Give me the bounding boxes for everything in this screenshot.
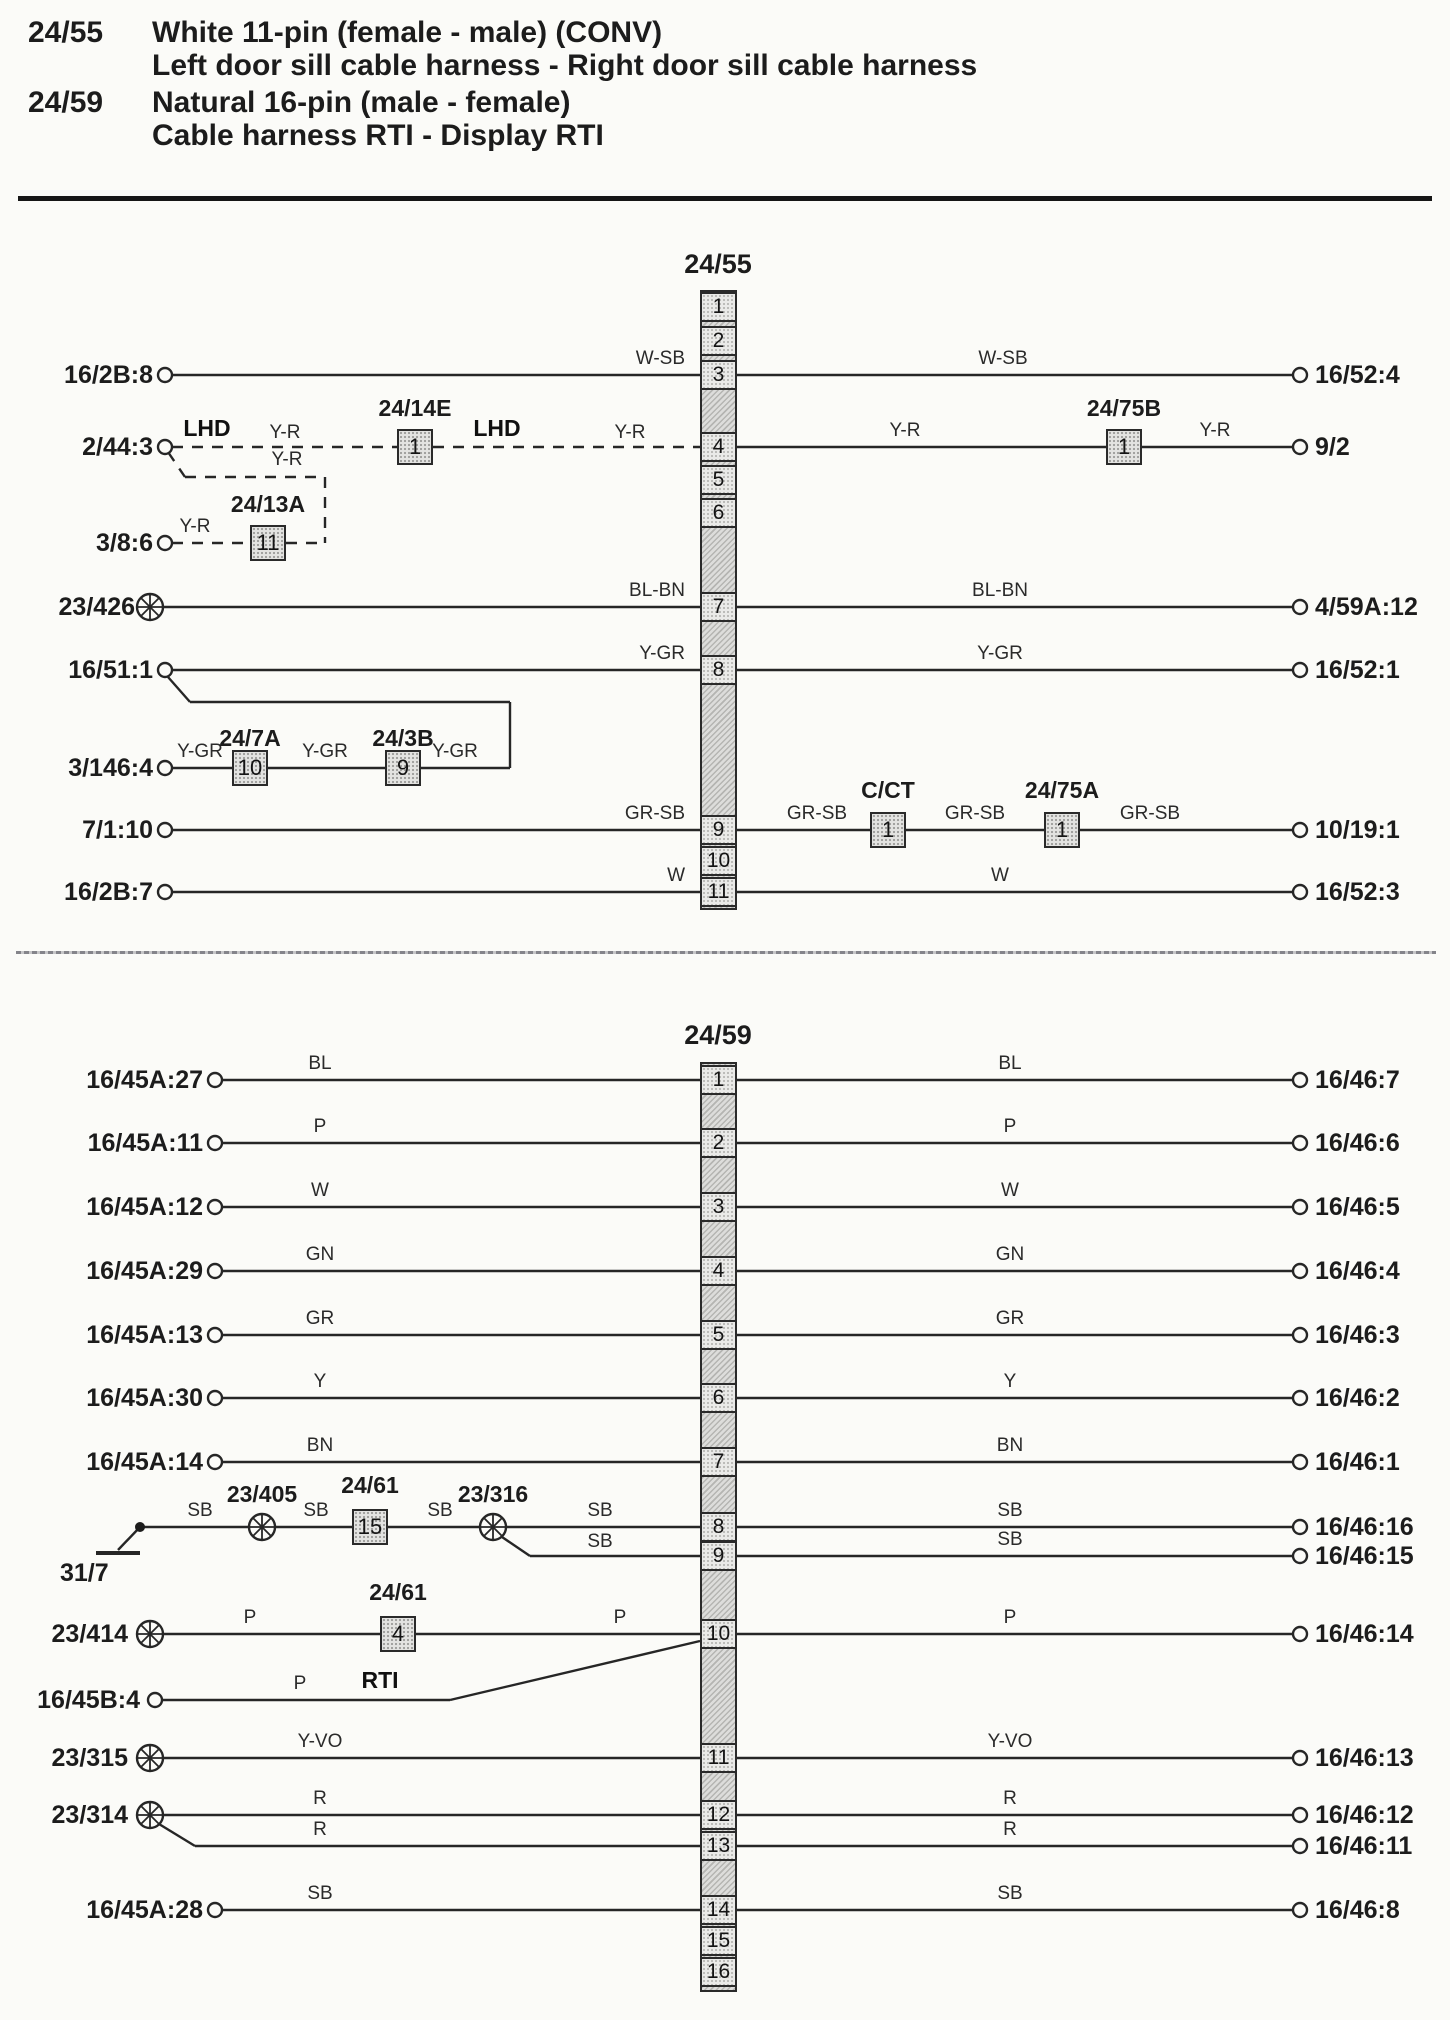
endpoint-label: 16/51:1 [0, 657, 153, 683]
terminal-icon [158, 761, 172, 775]
wire-color-label: P [960, 1117, 1060, 1137]
component-label: 23/316 [433, 1482, 553, 1506]
terminal-icon [208, 1264, 222, 1278]
endpoint-label: 16/45A:27 [20, 1067, 203, 1093]
endpoint-label: 16/52:4 [1315, 362, 1400, 388]
endpoint-label: 16/45B:4 [0, 1687, 140, 1713]
pin-cell: 13 [700, 1831, 737, 1861]
wire-color-label: BN [270, 1436, 370, 1456]
terminal-icon [1293, 1391, 1307, 1405]
wire-color-label: GN [960, 1245, 1060, 1265]
wire-color-label: SB [266, 1501, 366, 1521]
component-label: 24/3B [343, 726, 463, 750]
terminal-icon [1293, 368, 1307, 382]
terminal-icon [1293, 1751, 1307, 1765]
terminal-icon [208, 1903, 222, 1917]
endpoint-label: 23/414 [0, 1621, 128, 1647]
wire-color-label: SB [960, 1501, 1060, 1521]
wire-color-label: W-SB [953, 349, 1053, 369]
wire-color-label: W [560, 866, 685, 886]
pin-cell: 3 [700, 1192, 737, 1222]
pin-cell: 3 [700, 360, 737, 390]
component-label: 24/13A [208, 492, 328, 516]
variant-tag-lhd: LHD [447, 418, 547, 438]
wire-color-label: Y-R [145, 517, 245, 537]
wire-color-label: SB [550, 1532, 650, 1552]
wire-color-label: R [960, 1789, 1060, 1809]
terminal-icon [208, 1136, 222, 1150]
endpoint-label: 16/46:4 [1315, 1258, 1400, 1284]
endpoint-label: 16/45A:13 [20, 1322, 203, 1348]
wire-color-label: Y-VO [270, 1732, 370, 1752]
endpoint-label: 16/45A:29 [20, 1258, 203, 1284]
pin-cell: 6 [700, 498, 737, 528]
terminal-icon [1293, 823, 1307, 837]
component-label: 24/61 [310, 1473, 430, 1497]
terminal-icon [1293, 1264, 1307, 1278]
ground-label: 31/7 [60, 1560, 109, 1586]
terminal-icon [208, 1328, 222, 1342]
wire-color-label: BL [960, 1054, 1060, 1074]
pin-cell: 9 [700, 1541, 737, 1571]
wiring-diagram-page: 24/55 White 11-pin (female - male) (CONV… [0, 0, 1450, 2020]
endpoint-label: 3/146:4 [0, 755, 153, 781]
component-label: 24/75A [1002, 778, 1122, 802]
wire-d1-branch-diag [168, 452, 185, 477]
terminal-icon [1293, 1200, 1307, 1214]
endpoint-label: 16/46:11 [1315, 1833, 1412, 1859]
pin-cell: 12 [700, 1800, 737, 1830]
endpoint-label: 9/2 [1315, 434, 1350, 460]
wire-color-label: SB [270, 1884, 370, 1904]
wire-color-label: BL-BN [950, 581, 1050, 601]
terminal-icon [158, 368, 172, 382]
pin-cell: 1 [700, 292, 737, 322]
wire-color-label: Y-GR [950, 644, 1050, 664]
terminal-icon [1293, 1839, 1307, 1853]
terminal-icon [1293, 1549, 1307, 1563]
endpoint-label: 16/45A:14 [20, 1449, 203, 1475]
wire-color-label: Y-R [1165, 421, 1265, 441]
terminal-icon [1293, 1328, 1307, 1342]
pin-cell: 16 [700, 1957, 737, 1987]
wire-color-label: BN [960, 1436, 1060, 1456]
pin-cell: 11 [700, 1743, 737, 1773]
terminal-icon [148, 1693, 162, 1707]
pin-cell: 15 [700, 1926, 737, 1956]
wire-color-label: GR-SB [1100, 804, 1200, 824]
wire-color-label: R [960, 1820, 1060, 1840]
wire-color-label: Y-GR [560, 644, 685, 664]
connector-title-24-55: 24/55 [658, 249, 778, 280]
pin-cell: 4 [700, 432, 737, 462]
pin-cell: 5 [700, 465, 737, 495]
terminal-icon [1293, 1627, 1307, 1641]
wire-color-label: P [200, 1608, 300, 1628]
endpoint-label: 16/52:1 [1315, 657, 1400, 683]
terminal-icon [1293, 1136, 1307, 1150]
pin-cell: 5 [700, 1320, 737, 1350]
terminal-icon [1293, 1903, 1307, 1917]
endpoint-label: 16/46:8 [1315, 1897, 1400, 1923]
wire-color-label: Y-R [235, 423, 335, 443]
terminal-icon [1293, 1520, 1307, 1534]
wire-color-label: W [270, 1181, 370, 1201]
wire-color-label: Y [270, 1372, 370, 1392]
terminal-icon [208, 1073, 222, 1087]
wire-color-label: GR-SB [925, 804, 1025, 824]
inline-connector-box: 1 [870, 812, 906, 848]
terminal-icon [158, 440, 172, 454]
inline-connector-box: 1 [1106, 429, 1142, 465]
endpoint-label: 7/1:10 [0, 817, 153, 843]
wire-color-label: GN [270, 1245, 370, 1265]
wire-color-label: BL [270, 1054, 370, 1074]
wire-color-label: SB [550, 1501, 650, 1521]
wire-color-label: P [570, 1608, 670, 1628]
component-label: 24/61 [338, 1580, 458, 1604]
terminal-icon [1293, 600, 1307, 614]
wire-color-label: P [960, 1608, 1060, 1628]
endpoint-label: 16/46:3 [1315, 1322, 1400, 1348]
inline-connector-box: 10 [232, 750, 268, 786]
endpoint-label: 16/2B:7 [0, 879, 153, 905]
endpoint-label: 10/19:1 [1315, 817, 1400, 843]
wire-color-label: SB [960, 1884, 1060, 1904]
component-label: 24/14E [355, 396, 475, 420]
component-label: 24/7A [190, 726, 310, 750]
inline-connector-box: 11 [250, 525, 286, 561]
wire-color-label: W [950, 866, 1050, 886]
endpoint-label: 16/46:15 [1315, 1543, 1414, 1569]
wire-color-label: GR-SB [767, 804, 867, 824]
wire-color-label: GR-SB [560, 804, 685, 824]
endpoint-label: 16/52:3 [1315, 879, 1400, 905]
endpoint-label: 16/45A:12 [20, 1194, 203, 1220]
pin-cell: 10 [700, 1619, 737, 1649]
endpoint-label: 23/314 [0, 1802, 128, 1828]
terminal-icon [1293, 663, 1307, 677]
terminal-icon [1293, 1808, 1307, 1822]
endpoint-label: 16/2B:8 [0, 362, 153, 388]
pin-cell: 1 [700, 1065, 737, 1095]
endpoint-label: 16/46:6 [1315, 1130, 1400, 1156]
component-label: C/CT [828, 778, 948, 802]
terminal-icon [208, 1200, 222, 1214]
wire-color-label: W-SB [560, 349, 685, 369]
inline-connector-box: 15 [352, 1509, 388, 1545]
endpoint-label: 16/46:13 [1315, 1745, 1414, 1771]
terminal-icon [1293, 885, 1307, 899]
terminal-icon [208, 1455, 222, 1469]
pin-cell: 14 [700, 1895, 737, 1925]
inline-connector-box: 1 [397, 429, 433, 465]
wire-color-label: Y-R [580, 423, 680, 443]
wire-color-label: GR [270, 1309, 370, 1329]
endpoint-label: 16/46:1 [1315, 1449, 1400, 1475]
component-label: 24/75B [1064, 396, 1184, 420]
pin-cell: 8 [700, 1512, 737, 1542]
endpoint-label: 16/45A:30 [20, 1385, 203, 1411]
junction-dot [135, 1522, 145, 1532]
endpoint-label: 16/46:16 [1315, 1514, 1414, 1540]
splice-icon-23-426 [137, 594, 163, 620]
pin-cell: 10 [700, 846, 737, 876]
endpoint-label: 23/315 [0, 1745, 128, 1771]
endpoint-label: 16/45A:11 [20, 1130, 203, 1156]
wire-d2-p13-diag [159, 1824, 195, 1846]
pin-cell: 9 [700, 815, 737, 845]
terminal-icon [1293, 1073, 1307, 1087]
wire-color-label: BL-BN [560, 581, 685, 601]
endpoint-label: 16/46:2 [1315, 1385, 1400, 1411]
wire-d2-p9-diag [502, 1537, 530, 1556]
splice-icon-23-314 [137, 1802, 163, 1828]
wire-color-label: Y-VO [960, 1732, 1060, 1752]
terminal-icon [1293, 1455, 1307, 1469]
endpoint-label: 16/45A:28 [20, 1897, 203, 1923]
endpoint-label: 2/44:3 [0, 434, 153, 460]
wire-color-label: Y-R [237, 450, 337, 470]
pin-cell: 8 [700, 655, 737, 685]
terminal-icon [158, 885, 172, 899]
wire-color-label: P [270, 1117, 370, 1137]
endpoint-label: 16/46:14 [1315, 1621, 1414, 1647]
terminal-icon [1293, 440, 1307, 454]
terminal-icon [158, 536, 172, 550]
rti-tag: RTI [330, 1670, 430, 1690]
splice-icon-23-315 [137, 1745, 163, 1771]
inline-connector-box: 4 [380, 1616, 416, 1652]
wire-color-label: SB [960, 1530, 1060, 1550]
splice-icon-23-414 [137, 1621, 163, 1647]
pin-cell: 4 [700, 1256, 737, 1286]
pin-cell: 7 [700, 1447, 737, 1477]
endpoint-label: 3/8:6 [0, 530, 153, 556]
terminal-icon [158, 823, 172, 837]
pin-cell: 7 [700, 592, 737, 622]
inline-connector-box: 9 [385, 750, 421, 786]
wire-color-label: Y-R [855, 421, 955, 441]
wire-color-label: R [270, 1789, 370, 1809]
wire-color-label: Y [960, 1372, 1060, 1392]
wire-color-label: GR [960, 1309, 1060, 1329]
endpoint-label: 16/46:12 [1315, 1802, 1414, 1828]
terminal-icon [208, 1391, 222, 1405]
wire-color-label: R [270, 1820, 370, 1840]
terminal-icon [158, 663, 172, 677]
pin-cell: 11 [700, 877, 737, 907]
wire-color-label: W [960, 1181, 1060, 1201]
endpoint-label: 16/46:5 [1315, 1194, 1400, 1220]
wire-d1-p8-branch-diag [168, 677, 190, 702]
pin-cell: 6 [700, 1383, 737, 1413]
inline-connector-box: 1 [1044, 812, 1080, 848]
pin-cell: 2 [700, 326, 737, 356]
endpoint-label: 4/59A:12 [1315, 594, 1418, 620]
wire-d2-rti-diag [450, 1641, 700, 1700]
connector-title-24-59: 24/59 [658, 1020, 778, 1051]
pin-cell: 2 [700, 1128, 737, 1158]
endpoint-label: 16/46:7 [1315, 1067, 1400, 1093]
endpoint-label: 23/426 [0, 594, 135, 620]
